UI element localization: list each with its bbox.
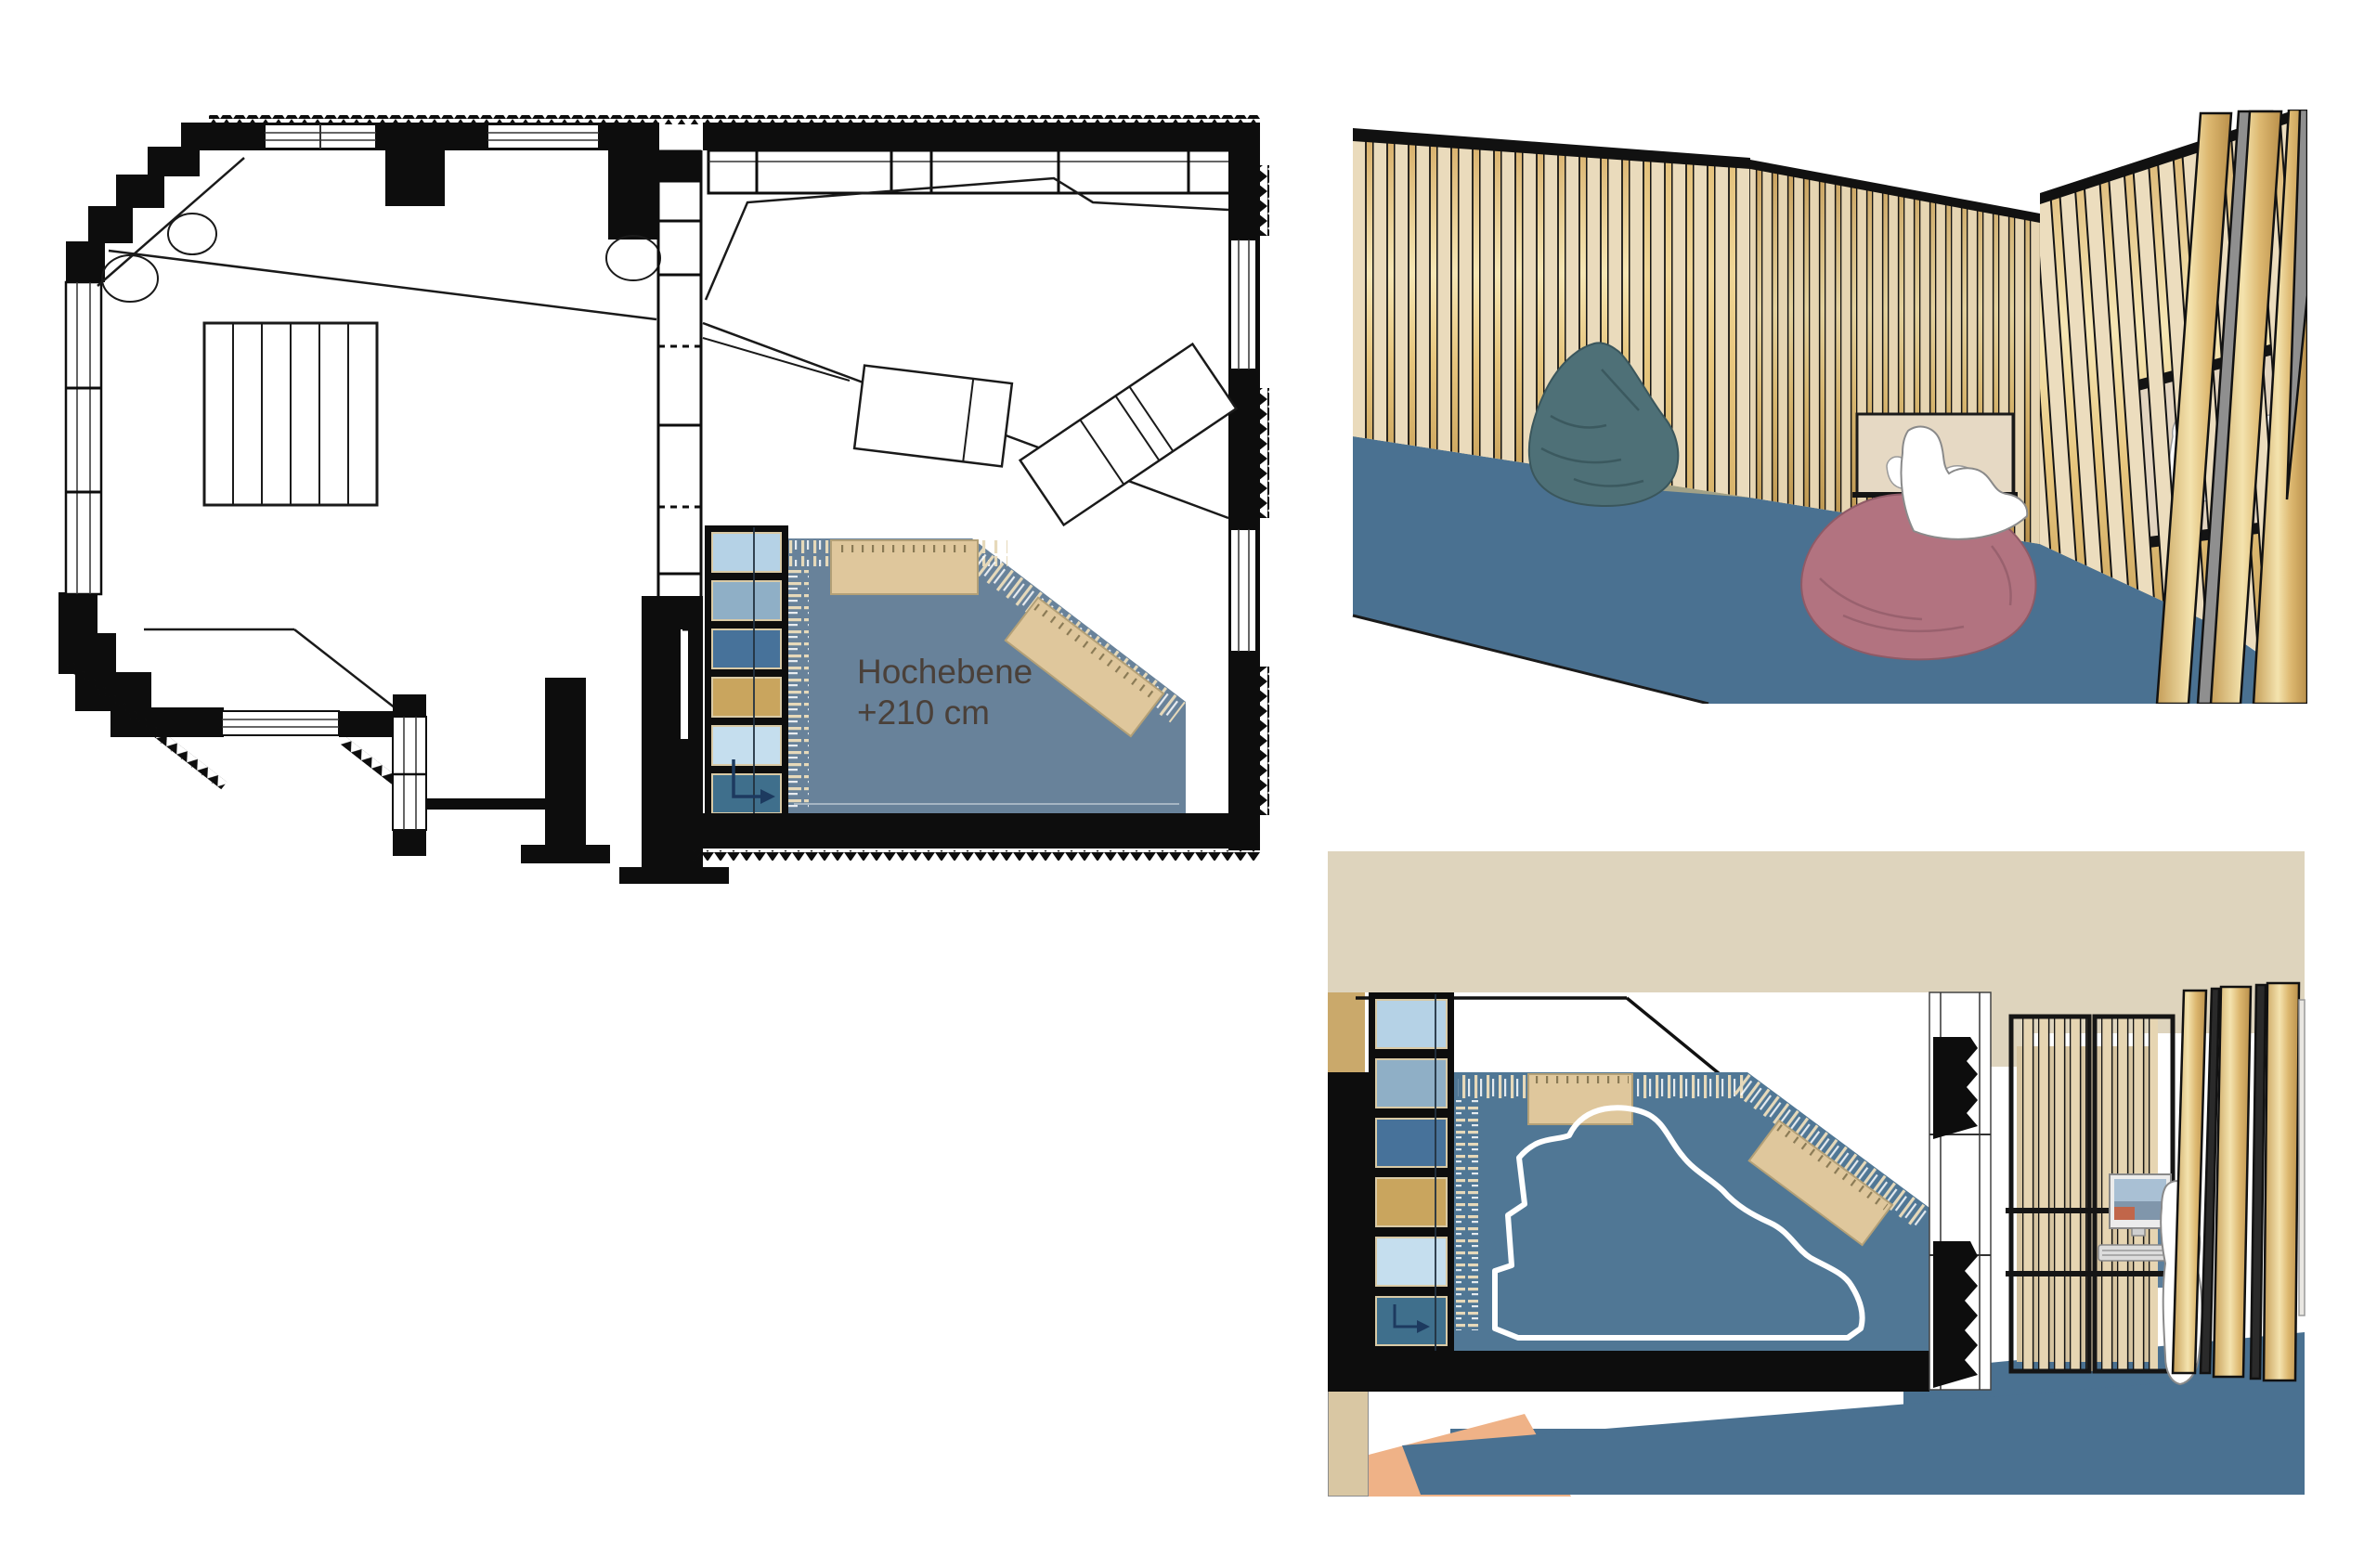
plan-window-stub (393, 717, 426, 830)
plan-window-bottom (222, 711, 339, 735)
section-render-panel (1328, 851, 2323, 1497)
plan-window-strip-left (66, 282, 101, 594)
plan-bottom-wall-right (692, 813, 1260, 861)
plan-niche-cells (705, 525, 788, 823)
plan-right-wall (1228, 123, 1269, 850)
plan-stair-block (204, 323, 377, 505)
perspective-render-svg (1351, 110, 2307, 704)
plan-window-top-2 (487, 124, 599, 149)
plan-window-top-1 (265, 124, 376, 149)
section-render-svg (1328, 851, 2323, 1497)
hochebene-label-line2: +210 cm (857, 693, 990, 732)
plan-hochebene: Hochebene +210 cm (705, 525, 1186, 823)
plan-bottom-corridor (393, 596, 729, 884)
section-niche-cells (1369, 992, 1454, 1358)
hochebene-label-line1: Hochebene (857, 653, 1033, 691)
plan-window-band (708, 150, 1230, 193)
perspective-render-panel (1351, 110, 2307, 704)
floor-plan-svg: Hochebene +210 cm (51, 110, 1342, 899)
plan-desk-1 (854, 366, 1012, 467)
floor-plan-panel: Hochebene +210 cm (51, 110, 1342, 899)
plan-middle-wall (658, 150, 701, 629)
plan-window-right-1 (1230, 240, 1256, 369)
plan-interior-left-room (97, 158, 660, 715)
plan-window-right-2 (1230, 529, 1256, 652)
section-3d-scene (2006, 983, 2305, 1384)
plan-desk-2 (1020, 344, 1237, 525)
section-plan-overlay (1328, 992, 1991, 1392)
plan-mat-1 (831, 540, 978, 594)
section-plan-window-strip (1929, 992, 1991, 1390)
section-tall-slats (2173, 983, 2299, 1380)
